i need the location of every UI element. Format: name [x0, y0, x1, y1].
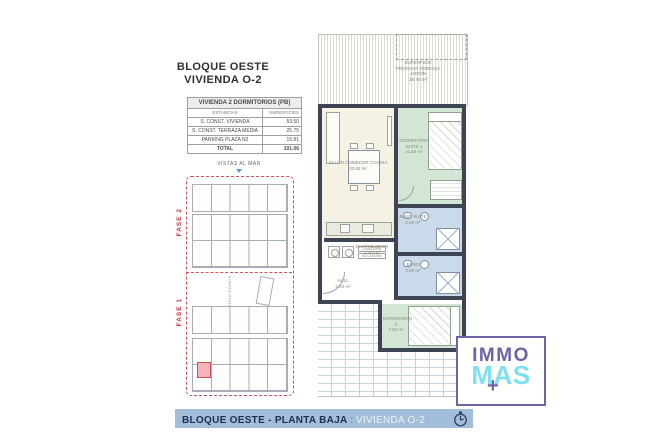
page-title: BLOQUE OESTE VIVIENDA O-2: [157, 61, 289, 87]
logo-plus-icon: +: [487, 375, 499, 398]
fase2-label: FASE 2: [176, 208, 183, 236]
row-value: 59.50: [263, 118, 302, 127]
site-block-fase2-top: [192, 184, 288, 212]
row-value: 15.81: [263, 136, 302, 145]
chair: [350, 185, 358, 191]
page-title-line1: BLOQUE OESTE: [157, 61, 289, 74]
highlighted-unit-o2: [197, 362, 211, 378]
table-row: S. CONST. VIVIENDA 59.50: [188, 118, 302, 127]
paving-left: [318, 304, 378, 352]
immomas-logo: IMMO MAS +: [456, 336, 546, 406]
paving-bottom: [318, 352, 466, 397]
kitchen-hob: [362, 224, 374, 233]
salon-label: SALÓN COMEDOR COCINA 20.85 m²: [328, 160, 388, 171]
total-label: TOTAL: [188, 145, 263, 154]
dormitorio2-label: DORMITORIO 2 7.60 m²: [383, 316, 409, 333]
wall: [398, 252, 462, 256]
suite-bed: [428, 112, 462, 170]
bano-label: BAÑO 3.85 m²: [399, 262, 427, 273]
total-value: 101.06: [263, 145, 302, 154]
kitchen-sink: [340, 224, 350, 233]
vistas-al-mar-label: VISTAS AL MAR: [185, 161, 293, 167]
kitchen-counter: [326, 222, 392, 236]
suite-wardrobe: [430, 180, 462, 200]
footer-banner-text: BLOQUE OESTE - PLANTA BAJA : VIVIENDA O-…: [182, 409, 425, 430]
hall-label: HALL 2.20 m²: [328, 278, 358, 289]
wall: [324, 238, 394, 242]
bano-suite-label: BAÑO SUITE 3.80 m²: [399, 214, 427, 225]
site-block-fase1-top: [192, 306, 288, 334]
wall: [318, 104, 466, 108]
phase-divider-line: [186, 272, 292, 273]
row-label: PARKING PLAZA N2: [188, 136, 263, 145]
areas-col-superficies: SUPERFICIES: [263, 109, 302, 118]
banner-title: BLOQUE OESTE - PLANTA BAJA: [182, 415, 348, 426]
row-value: 25.75: [263, 127, 302, 136]
banner-subtitle: VIVIENDA O-2: [356, 415, 425, 426]
pillow: [429, 113, 461, 122]
footer-banner: BLOQUE OESTE - PLANTA BAJA : VIVIENDA O-…: [175, 409, 473, 428]
washer-drum: [331, 249, 339, 257]
wall: [378, 300, 382, 352]
clock-icon: [453, 411, 468, 427]
chair: [366, 185, 374, 191]
areas-table: VIVIENDA 2 DORMITORIOS (PB) ESTANCIAS SU…: [187, 97, 302, 154]
logo-mas-text: MAS: [458, 363, 544, 387]
terrace-label: SUPERFICIE PRIVATIVA TERRAZA JARDÍN 25.7…: [384, 60, 452, 82]
zona-comun-label: ZONA COMÚN: [227, 275, 232, 307]
tv-cabinet: [387, 116, 392, 146]
wall: [318, 104, 322, 304]
sea-direction-arrow-icon: [236, 169, 242, 173]
shower-bano: [436, 272, 460, 294]
row-label: S. CONST. TERRAZA MEDIA: [188, 127, 263, 136]
dormitorio2-bed: [408, 306, 460, 346]
wall: [462, 104, 466, 352]
page-title-line2: VIVIENDA O-2: [157, 74, 289, 87]
table-row: S. CONST. TERRAZA MEDIA 25.75: [188, 127, 302, 136]
washing-machine: [328, 246, 340, 258]
distribuidor-label: DISTRIBUIDOR 1.50 m²: [352, 244, 392, 255]
floor-plan-sheet: BLOQUE OESTE VIVIENDA O-2 VIVIENDA 2 DOR…: [0, 0, 648, 439]
suite-label: DORMITORIO SUITE 1 11.50 m²: [399, 138, 429, 155]
row-label: S. CONST. VIVIENDA: [188, 118, 263, 127]
site-block-fase2-bottom: [192, 214, 288, 268]
fase1-label: FASE 1: [176, 298, 183, 326]
table-total-row: TOTAL 101.06: [188, 145, 302, 154]
sofa: [326, 112, 340, 164]
chair: [366, 143, 374, 149]
chair: [350, 143, 358, 149]
wall: [398, 296, 462, 300]
areas-table-title: VIVIENDA 2 DORMITORIOS (PB): [188, 98, 302, 109]
areas-col-estancias: ESTANCIAS: [188, 109, 263, 118]
wall: [398, 204, 462, 208]
shower-suite: [436, 228, 460, 250]
terrace-pergola-outline: [396, 34, 467, 60]
banner-separator: :: [348, 415, 356, 426]
table-row: PARKING PLAZA N2 15.81: [188, 136, 302, 145]
